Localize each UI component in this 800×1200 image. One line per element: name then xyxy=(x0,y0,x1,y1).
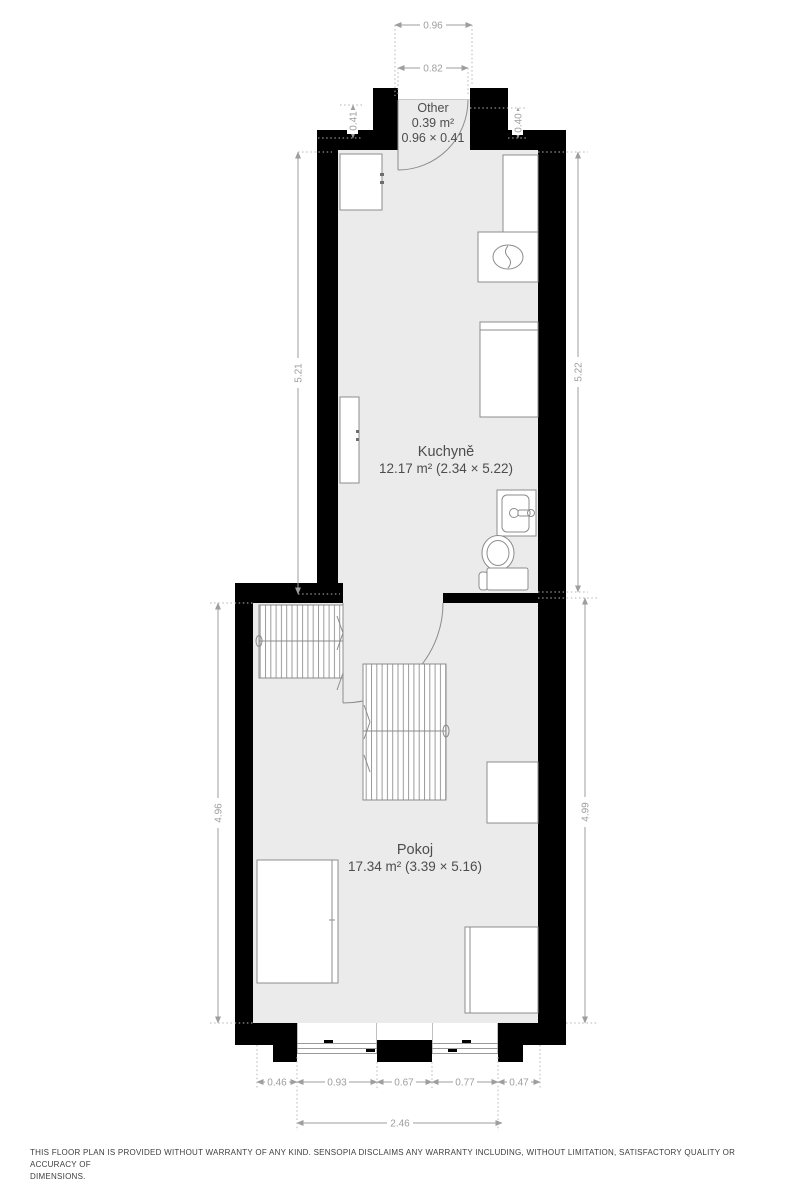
wall-bottom-left-stub xyxy=(273,1043,297,1062)
wall-niche-right xyxy=(470,88,508,150)
wall-room-left xyxy=(235,583,253,1045)
svg-text:0.41: 0.41 xyxy=(349,111,360,131)
svg-text:5.21: 5.21 xyxy=(294,363,305,383)
svg-text:2.46: 2.46 xyxy=(390,1119,410,1130)
sink xyxy=(497,490,536,536)
wall-bottom-right-stub xyxy=(498,1043,523,1062)
disclaimer-line-2: DIMENSIONS. xyxy=(30,1171,770,1183)
window-left xyxy=(297,1023,377,1054)
svg-text:0.93: 0.93 xyxy=(327,1078,347,1089)
wall-bottom-left-corner xyxy=(235,1023,297,1045)
svg-text:0.46: 0.46 xyxy=(267,1078,287,1089)
washing-machine xyxy=(478,232,538,282)
dim-entry-opening-width: 0.82 xyxy=(398,62,468,96)
wall-niche-left xyxy=(373,88,398,150)
entry-room-area: 0.39 m² xyxy=(412,116,454,130)
wall-bottom-pier xyxy=(377,1040,432,1062)
cabinet-top-left xyxy=(340,154,382,210)
bed-center xyxy=(363,664,449,800)
chest-bottom-right xyxy=(465,927,538,1013)
cabinet-handle-icon xyxy=(380,181,384,184)
room-details: 17.34 m² (3.39 × 5.16) xyxy=(348,859,482,874)
nightstand xyxy=(487,762,538,823)
counter-handle-icon xyxy=(356,438,359,441)
wall-bottom-right-corner xyxy=(498,1023,566,1045)
counter-right xyxy=(480,322,538,417)
entry-room-size: 0.96 × 0.41 xyxy=(402,131,465,145)
window-right xyxy=(432,1023,498,1054)
wall-step-right xyxy=(443,593,538,603)
wall-right xyxy=(538,130,566,1045)
svg-text:0.40: 0.40 xyxy=(514,113,525,133)
svg-text:5.22: 5.22 xyxy=(574,362,585,382)
svg-text:0.47: 0.47 xyxy=(509,1078,529,1089)
wardrobe xyxy=(257,860,338,983)
entry-room-name: Other xyxy=(417,101,448,115)
fridge xyxy=(503,155,538,238)
disclaimer-line-1: THIS FLOOR PLAN IS PROVIDED WITHOUT WARR… xyxy=(30,1147,770,1171)
counter-handle-icon xyxy=(356,430,359,433)
svg-text:0.96: 0.96 xyxy=(423,21,443,32)
wall-kitchen-left xyxy=(317,130,338,603)
cabinet-handle-icon xyxy=(380,173,384,176)
svg-text:0.82: 0.82 xyxy=(423,64,443,75)
floor-plan-drawing: 0.96 0.82 0.41 0.40 xyxy=(0,0,800,1200)
dim-entry-outer-width: 0.96 xyxy=(395,19,472,96)
dim-bottom-total: 2.46 xyxy=(297,1117,502,1130)
svg-text:4.99: 4.99 xyxy=(581,802,592,822)
kitchen-details: 12.17 m² (2.34 × 5.22) xyxy=(379,461,513,476)
svg-text:4.96: 4.96 xyxy=(214,803,225,823)
svg-text:0.67: 0.67 xyxy=(394,1078,414,1089)
bed-top-left xyxy=(256,605,343,690)
kitchen-name: Kuchyně xyxy=(418,444,474,460)
room-name: Pokoj xyxy=(397,842,433,858)
floor-plan-canvas: 0.96 0.82 0.41 0.40 xyxy=(0,0,800,1200)
disclaimer-text: THIS FLOOR PLAN IS PROVIDED WITHOUT WARR… xyxy=(30,1147,770,1183)
svg-text:0.77: 0.77 xyxy=(455,1078,475,1089)
